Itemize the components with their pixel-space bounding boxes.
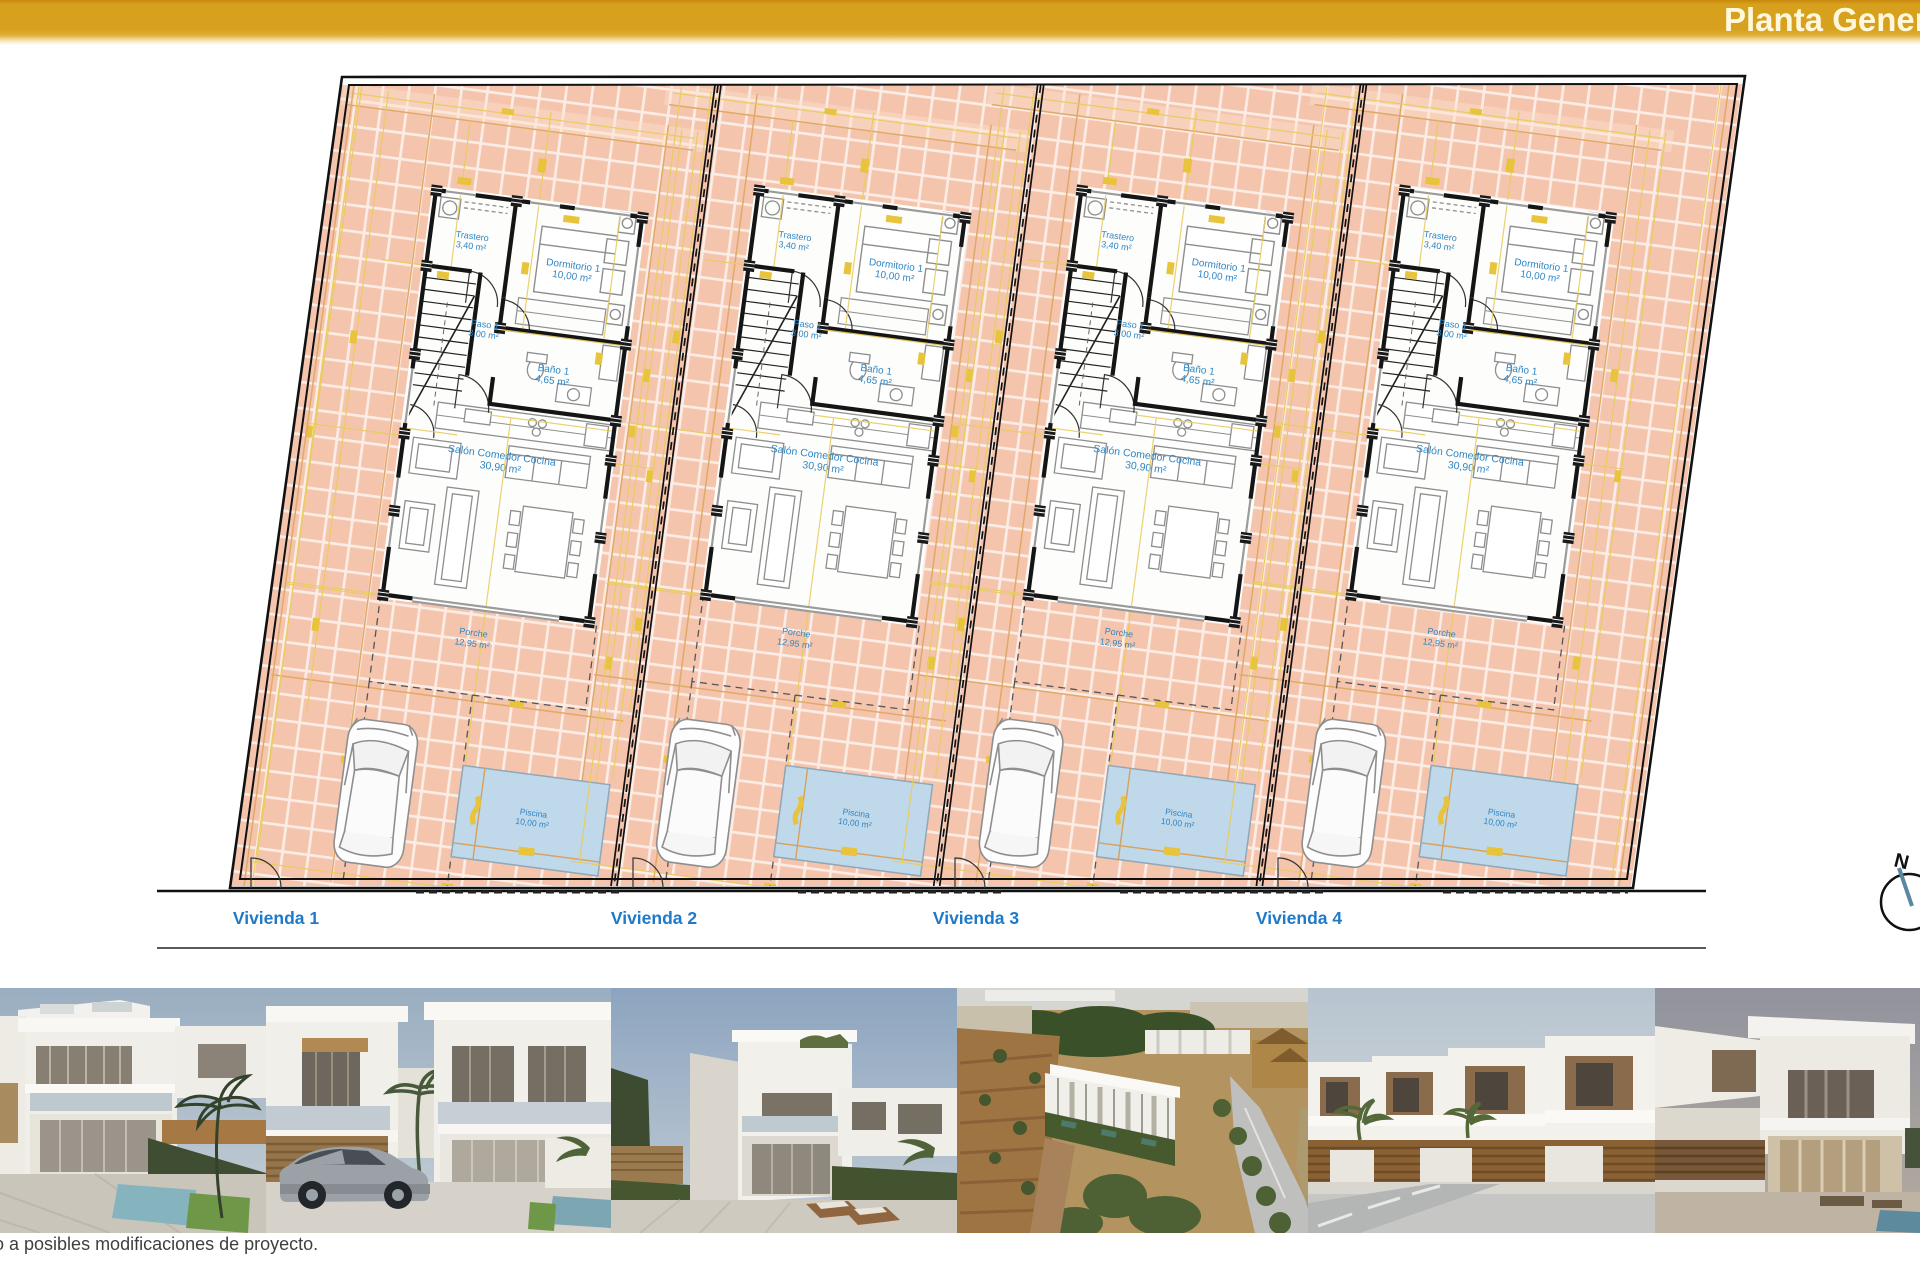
svg-text:Vivienda 3: Vivienda 3 xyxy=(933,908,1020,928)
svg-text:Vivienda 4: Vivienda 4 xyxy=(1256,908,1343,928)
svg-text:N: N xyxy=(1892,850,1911,875)
svg-text:Vivienda 2: Vivienda 2 xyxy=(611,908,698,928)
svg-text:Vivienda 1: Vivienda 1 xyxy=(233,908,320,928)
